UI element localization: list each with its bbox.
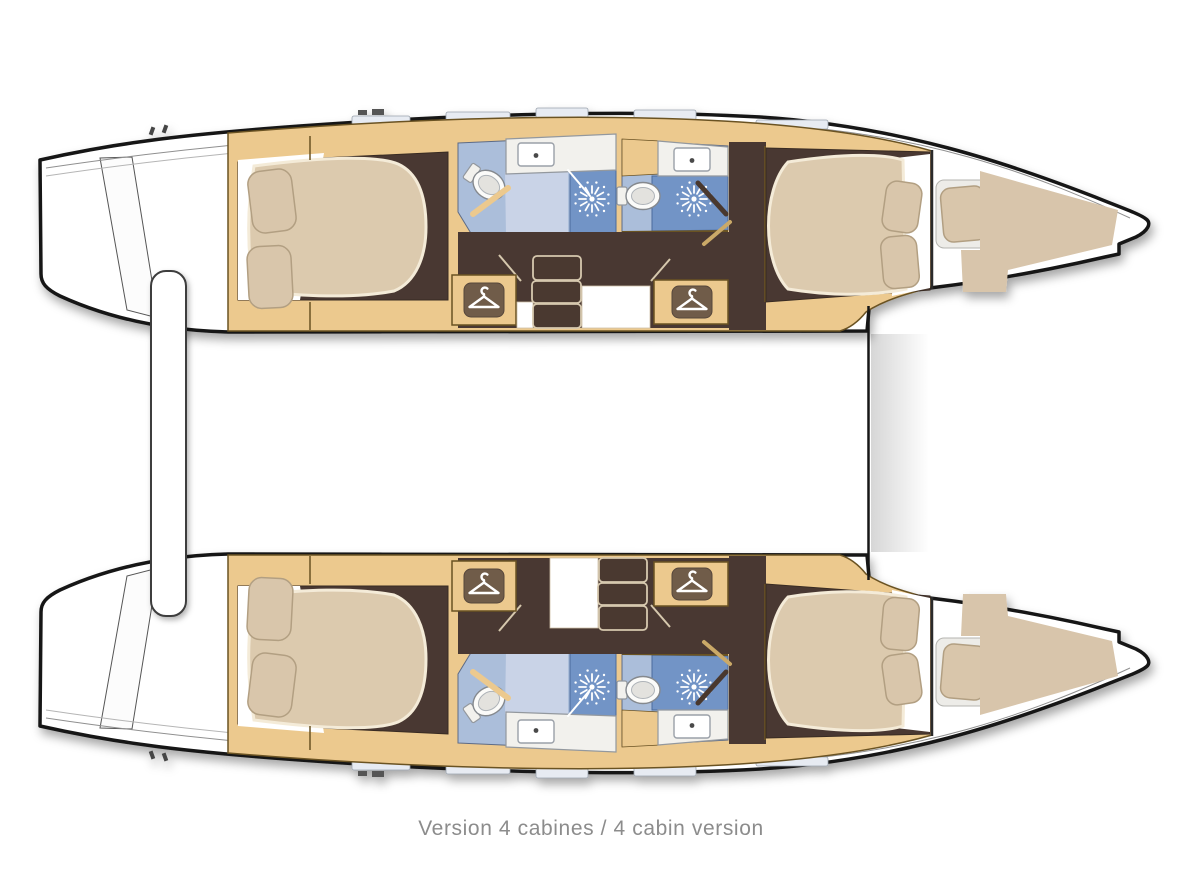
shower-spray-icon	[574, 669, 609, 704]
cleat-icon	[162, 753, 168, 762]
port-aft-bathroom	[458, 134, 616, 235]
starboard-aft-pillow-1	[246, 652, 297, 719]
port-forward-cabin	[766, 148, 932, 302]
catamaran-plan-svg	[0, 0, 1182, 886]
cleat-icon	[149, 751, 155, 760]
toilet-icon	[617, 183, 660, 210]
cleat-icon	[162, 125, 168, 134]
shower-spray-icon	[574, 181, 609, 216]
starboard-bow-deck	[961, 594, 1118, 715]
caption: Version 4 cabines / 4 cabin version	[0, 817, 1182, 841]
starboard-forward-pillow-1	[881, 652, 924, 707]
port-aft-pillow-1	[246, 168, 297, 235]
cleat-icon	[149, 127, 155, 136]
port-bow-deck	[961, 171, 1118, 292]
port-forward-bathroom	[617, 139, 728, 232]
sink-icon	[518, 720, 554, 743]
port-forward-pillow-2	[880, 235, 920, 290]
port-aft-pillow-2	[246, 245, 293, 309]
sink-icon	[674, 148, 710, 171]
starboard-forward-pillow-2	[880, 597, 920, 652]
floor-plan: Version 4 cabines / 4 cabin version	[0, 0, 1182, 886]
port-forward-pillow-1	[881, 180, 924, 235]
stern-platform-beam	[151, 271, 186, 616]
sink-icon	[518, 143, 554, 166]
shower-spray-icon	[676, 181, 711, 216]
shower-spray-icon	[676, 669, 711, 704]
starboard-companionway-stairs	[550, 558, 647, 630]
toilet-icon	[617, 677, 660, 704]
starboard-aft-pillow-2	[246, 577, 293, 641]
sink-icon	[674, 715, 710, 738]
starboard-forward-cabin	[766, 584, 932, 738]
starboard-aft-bathroom	[458, 651, 616, 752]
starboard-forward-bathroom	[617, 654, 728, 747]
